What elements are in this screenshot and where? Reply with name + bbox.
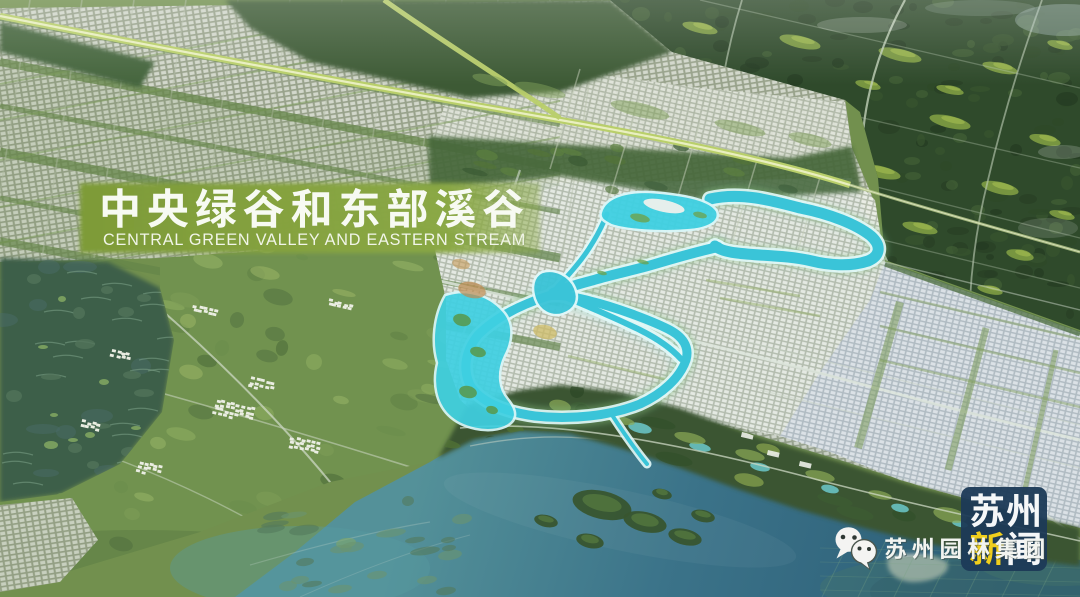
svg-text:CENTRAL GREEN VALLEY AND EASTE: CENTRAL GREEN VALLEY AND EASTERN STREAM <box>103 231 526 249</box>
